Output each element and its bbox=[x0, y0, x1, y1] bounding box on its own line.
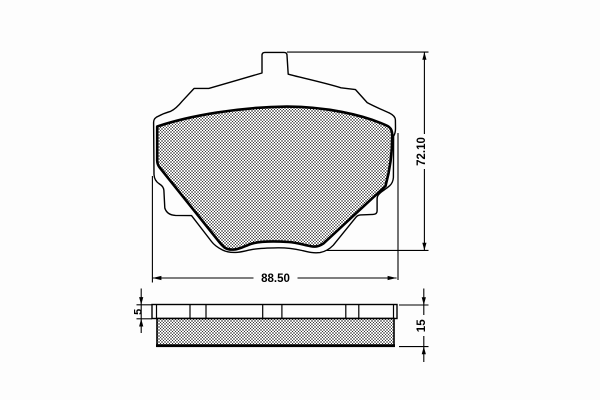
svg-text:72.10: 72.10 bbox=[416, 137, 428, 166]
svg-text:15: 15 bbox=[416, 319, 428, 332]
svg-text:5: 5 bbox=[132, 309, 144, 315]
svg-text:88.50: 88.50 bbox=[261, 273, 290, 285]
